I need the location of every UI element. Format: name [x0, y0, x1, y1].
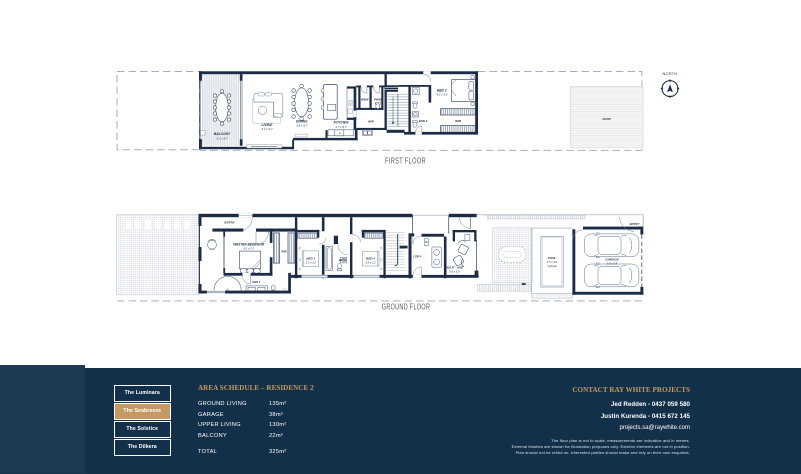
svg-text:NORTH: NORTH — [662, 71, 677, 76]
svg-text:2.5 x 4.9: 2.5 x 4.9 — [546, 260, 558, 264]
svg-text:3.5 x 3.2: 3.5 x 3.2 — [306, 260, 317, 264]
svg-text:WIP: WIP — [368, 119, 374, 123]
svg-text:WINE: WINE — [361, 97, 370, 101]
svg-text:ENTRY: ENTRY — [630, 222, 641, 226]
svg-text:BED 3: BED 3 — [306, 256, 315, 260]
svg-text:ENS 1: ENS 1 — [252, 280, 261, 284]
svg-text:ENTRY: ENTRY — [224, 220, 235, 224]
svg-text:3.6 x 3.0: 3.6 x 3.0 — [449, 269, 460, 273]
svg-text:WIR: WIR — [281, 250, 286, 254]
svg-text:ENS 2: ENS 2 — [419, 119, 428, 123]
svg-text:4.2 x 3.7: 4.2 x 3.7 — [243, 246, 254, 250]
svg-text:3.2 x 6.7: 3.2 x 6.7 — [216, 136, 227, 140]
svg-text:MULTI - USE: MULTI - USE — [445, 266, 464, 270]
svg-text:4.0 x 3.8: 4.0 x 3.8 — [436, 93, 447, 97]
svg-text:WIR: WIR — [455, 119, 462, 123]
svg-text:ROOF: ROOF — [602, 117, 611, 121]
svg-text:3.5 x 3.2: 3.5 x 3.2 — [365, 260, 376, 264]
svg-text:L’DRY: L’DRY — [413, 255, 422, 259]
svg-text:BATH: BATH — [339, 258, 348, 262]
svg-text:GROUND FLOOR: GROUND FLOOR — [382, 302, 431, 311]
svg-text:4.4 x 6.7: 4.4 x 6.7 — [261, 127, 272, 131]
svg-text:POOL: POOL — [548, 256, 557, 260]
svg-text:BED 4: BED 4 — [366, 256, 375, 260]
svg-text:6.6 x 5.6: 6.6 x 5.6 — [607, 261, 618, 265]
svg-text:*optional: *optional — [547, 265, 557, 268]
svg-text:F: F — [339, 132, 341, 136]
svg-text:3.8 x 6.7: 3.8 x 6.7 — [296, 124, 307, 128]
svg-text:PWDR: PWDR — [374, 97, 384, 101]
svg-text:2.7 x 6.7: 2.7 x 6.7 — [334, 125, 346, 129]
svg-text:FIRST FLOOR: FIRST FLOOR — [385, 157, 426, 166]
svg-text:GARAGE: GARAGE — [605, 257, 619, 261]
